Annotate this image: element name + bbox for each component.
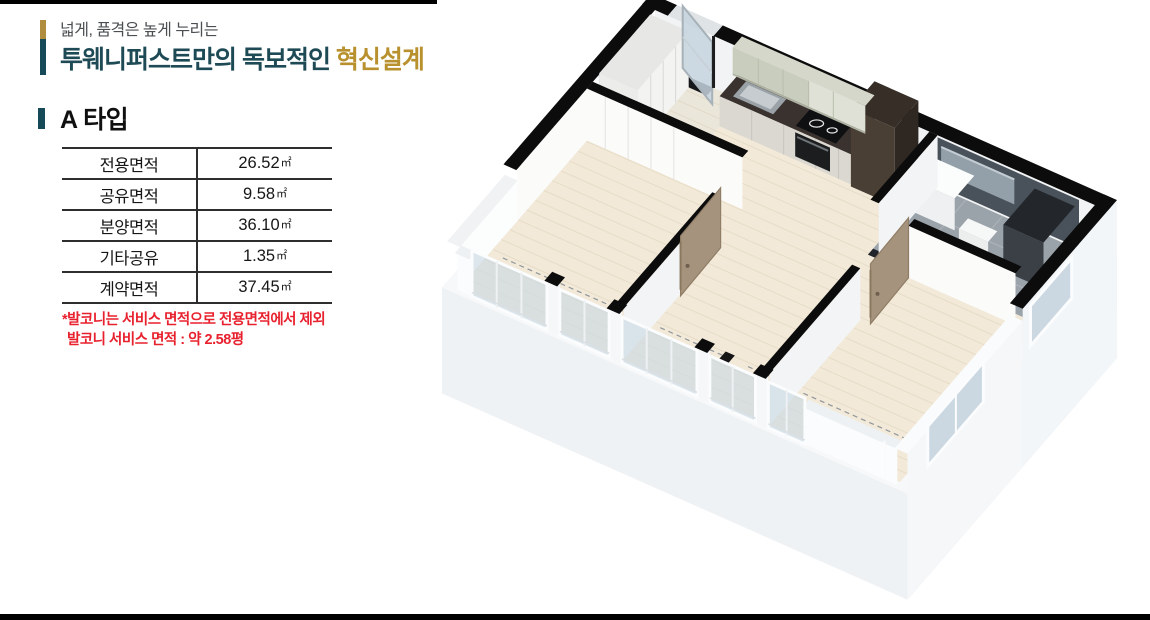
- floor-plan-3d: [0, 0, 1150, 620]
